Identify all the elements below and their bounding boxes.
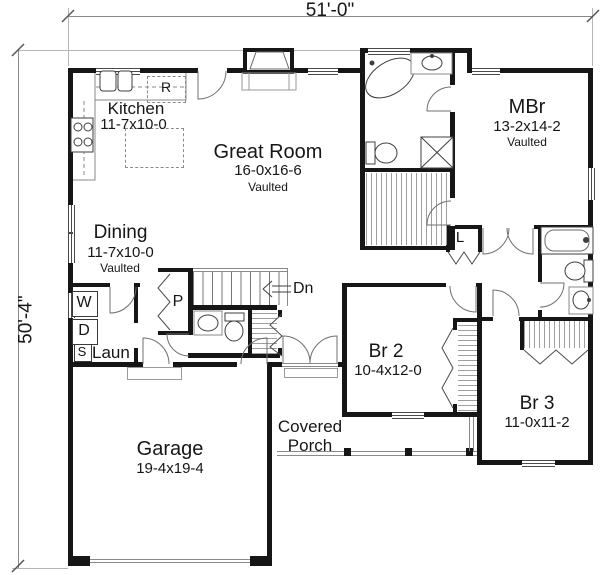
room-label-garage-name: Garage [120,438,220,460]
dimension-depth-label: 50'-4" [15,280,36,360]
refrigerator-label: R [156,80,176,96]
dimension-width-label: 51'-0" [270,0,390,21]
room-label-mbr-size: 13-2x14-2 [487,119,567,136]
room-label-br2-name: Br 2 [352,341,420,362]
room-label-mbr-note: Vaulted [487,136,567,149]
master-toilet [366,142,397,164]
room-label-dining-note: Vaulted [80,262,160,275]
hall-sink [569,287,593,314]
room-label-great-note: Vaulted [213,181,323,194]
linen-label: L [450,230,470,247]
room-label-kitchen-size: 11-7x10-0 [76,117,191,134]
room-label-dining-size: 11-7x10-0 [78,245,163,262]
room-label-br2-size: 10-4x12-0 [350,363,426,380]
room-label-laundry: Laun [92,343,136,362]
room-label-porch: Covered Porch [274,417,346,455]
hall-toilet [565,260,593,282]
fireplace-hearth [242,52,296,90]
washer-label: W [72,294,96,312]
stairs-down-label: Dn [293,280,323,298]
room-label-br3-name: Br 3 [502,393,572,414]
room-label-dining-name: Dining [78,222,163,243]
room-label-great-size: 16-0x16-6 [203,163,333,180]
halfbath-sink [194,311,222,335]
shower [421,137,453,168]
master-sink [411,53,452,74]
dryer-label: D [72,322,96,340]
pantry-label: P [168,293,188,311]
room-label-mbr-name: MBr [487,96,567,118]
laundry-sink-label: S [74,345,90,360]
floor-plan: 51'-0" 50'-4" Kitchen 11-7x10-0 Great Ro… [0,0,600,575]
room-label-br3-size: 11-0x11-2 [500,415,574,432]
room-label-great-name: Great Room [198,141,338,163]
kitchen-sink [100,71,132,91]
room-label-garage-size: 19-4x19-4 [122,461,218,478]
stairs-down-arrow [263,281,291,297]
halfbath-toilet [225,313,244,341]
hall-tub [541,227,593,254]
